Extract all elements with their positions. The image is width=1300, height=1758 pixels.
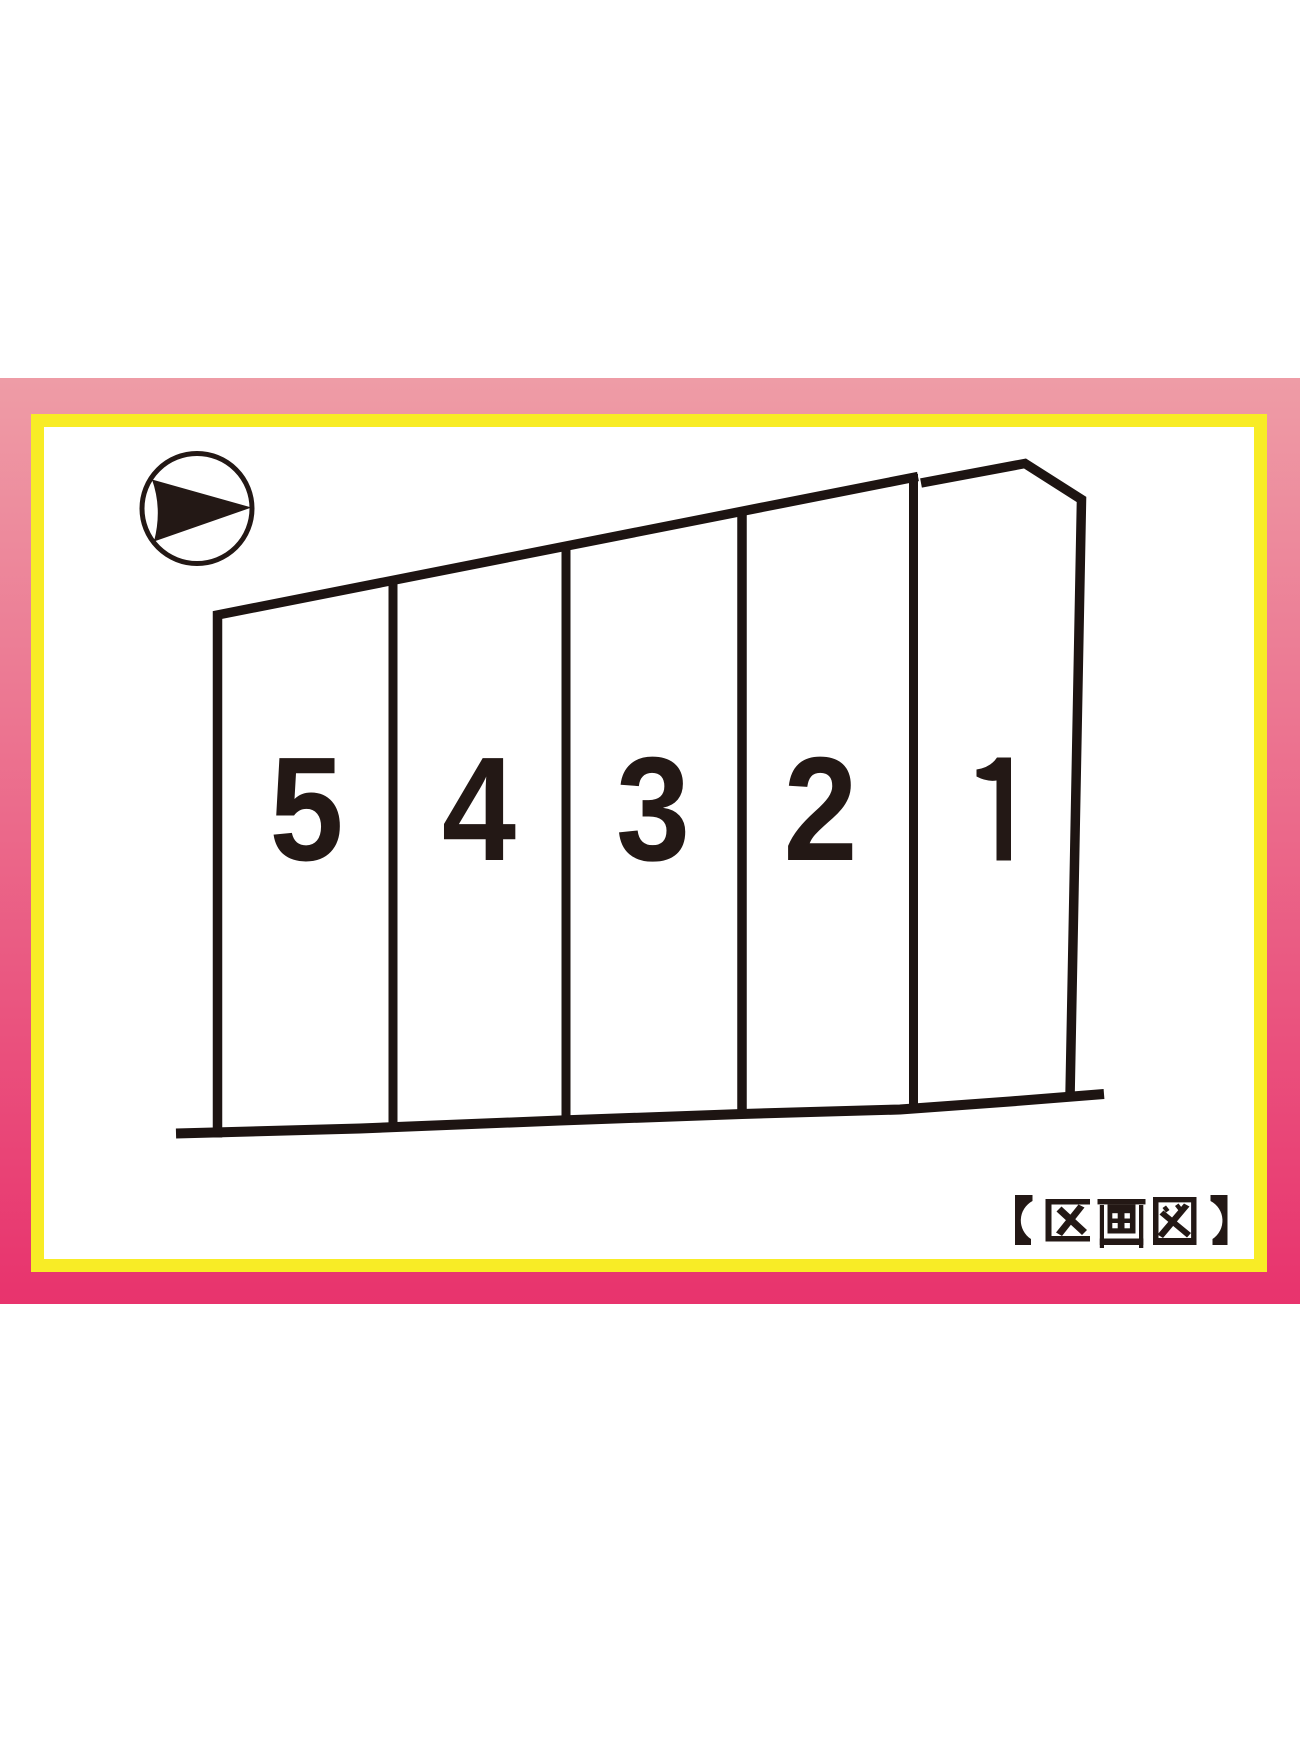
svg-text:5: 5 xyxy=(269,727,343,892)
svg-text:4: 4 xyxy=(442,727,516,892)
svg-text:2: 2 xyxy=(783,727,857,892)
svg-text:3: 3 xyxy=(616,727,690,892)
